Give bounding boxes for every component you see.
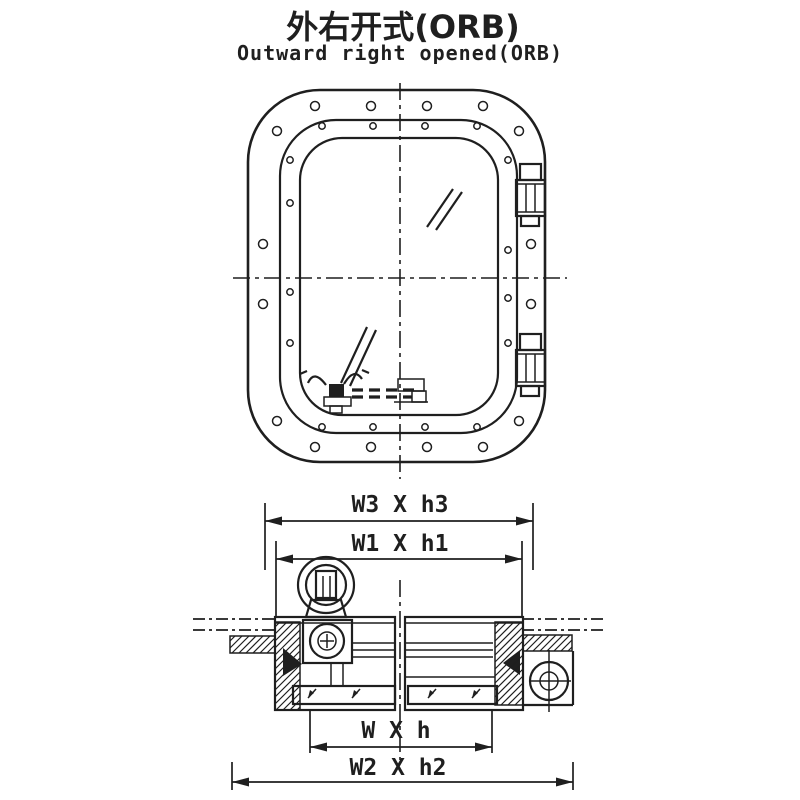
screw-icon — [287, 200, 293, 206]
arrowhead-right — [556, 778, 573, 787]
glass-opening — [300, 138, 498, 415]
bolt-icon — [527, 300, 536, 309]
eyebolt — [298, 557, 354, 617]
bolt-icon — [259, 300, 268, 309]
screw-icon — [505, 157, 511, 163]
hinge-tab — [521, 386, 539, 396]
hatch-line — [275, 622, 287, 634]
technical-drawing: 外右开式(ORB) Outward right opened(ORB) — [0, 0, 800, 800]
screw-icon — [287, 340, 293, 346]
handle-base — [324, 397, 351, 406]
handle-tick-right — [362, 370, 369, 373]
hinges — [516, 164, 545, 396]
clamp-tick — [308, 689, 316, 698]
hatch-line — [232, 636, 249, 653]
hatch-line — [540, 635, 556, 651]
dimension-label-w3h3: W3 X h3 — [352, 492, 449, 518]
hatch-line — [260, 638, 275, 653]
hatch-line — [515, 697, 523, 705]
hinge — [516, 164, 545, 226]
hatched-sections — [230, 622, 572, 710]
bolt-icon — [423, 102, 432, 111]
hatch-line — [547, 635, 563, 651]
hinge-barrel — [516, 180, 545, 216]
hatch-line — [230, 636, 242, 648]
screw-icon — [319, 424, 325, 430]
hatch-line — [275, 679, 300, 704]
screw-icon — [474, 123, 480, 129]
arrowhead-right — [516, 517, 533, 526]
arrowhead-left — [276, 555, 293, 564]
screw-icon — [474, 424, 480, 430]
bolt-icon — [273, 417, 282, 426]
hatch-line — [495, 676, 523, 704]
bolt-icon — [367, 443, 376, 452]
dimension-wh: W X h — [310, 709, 492, 753]
hatch-line — [554, 635, 570, 651]
bolt-icon — [479, 102, 488, 111]
hatch-line — [275, 672, 300, 697]
arrowhead-left — [232, 778, 249, 787]
hinge-barrel — [516, 350, 545, 386]
glass-mark — [436, 192, 462, 230]
section-right-half — [405, 617, 573, 712]
title-english: Outward right opened(ORB) — [237, 41, 563, 65]
locking-handle — [300, 370, 428, 413]
hatch-line — [526, 635, 542, 651]
dimension-label-wh: W X h — [361, 718, 430, 744]
dimensions: W3 X h3W1 X h1W X hW2 X h2 — [232, 492, 573, 790]
hatch-line — [495, 622, 507, 634]
hatch-line — [246, 636, 263, 653]
clamp-tick — [428, 689, 436, 698]
bolt-icon — [423, 443, 432, 452]
glass-reflection-marks — [341, 189, 462, 386]
section-left-half — [275, 617, 395, 710]
arrowhead-left — [265, 517, 282, 526]
handle-wing-left — [308, 376, 326, 385]
bolt-icon — [515, 417, 524, 426]
hatch-line — [253, 636, 270, 653]
hatched-region — [230, 636, 275, 653]
screw-icon — [505, 295, 511, 301]
bolt-icon — [259, 240, 268, 249]
hatch-line — [239, 636, 256, 653]
arrowhead-right — [475, 743, 492, 752]
hinge-cap — [520, 334, 541, 350]
clamp-tick — [472, 689, 480, 698]
bolt-icon — [515, 127, 524, 136]
bolt-icon — [527, 240, 536, 249]
retainer-strip-right — [408, 686, 497, 704]
hatch-line — [495, 669, 523, 697]
cover-bolts — [287, 123, 511, 430]
hatch-line — [523, 635, 535, 647]
latch-foot — [412, 391, 426, 402]
bolt-icon — [367, 102, 376, 111]
screw-icon — [422, 123, 428, 129]
screw-icon — [422, 424, 428, 430]
dimension-label-w2h2: W2 X h2 — [350, 755, 447, 781]
front-view — [233, 83, 567, 479]
bolt-icon — [479, 443, 488, 452]
hatch-line — [495, 627, 523, 655]
arrowhead-left — [310, 743, 327, 752]
handle-hub — [329, 384, 344, 397]
screw-icon — [505, 340, 511, 346]
outer-frame — [248, 90, 545, 462]
hatch-line — [275, 630, 300, 655]
hinge-cap — [520, 164, 541, 180]
retainer-strip-left — [293, 686, 395, 704]
glass-mark — [427, 189, 453, 227]
hatch-line — [283, 693, 300, 710]
bolt-icon — [311, 102, 320, 111]
dimension-w2h2: W2 X h2 — [232, 755, 573, 790]
hatch-line — [533, 635, 549, 651]
dimension-w1h1: W1 X h1 — [276, 531, 522, 616]
screw-icon — [287, 157, 293, 163]
hatched-region — [523, 635, 572, 651]
screw-icon — [287, 289, 293, 295]
hatch-line — [276, 686, 300, 710]
screw-icon — [370, 424, 376, 430]
hatch-line — [275, 623, 300, 648]
eyebolt-shank — [316, 571, 336, 598]
hinge-pin-assembly — [523, 650, 573, 712]
arrowhead-right — [505, 555, 522, 564]
hatch-line — [508, 690, 523, 705]
handle-foot — [330, 406, 342, 413]
glass-mark — [350, 330, 376, 386]
bolt-icon — [311, 443, 320, 452]
hinge-tab — [521, 216, 539, 226]
hatch-line — [495, 622, 521, 648]
hatch-line — [274, 652, 275, 653]
drawing-sheet: 外右开式(ORB) Outward right opened(ORB) — [0, 0, 800, 800]
screw-icon — [370, 123, 376, 129]
hatch-line — [522, 704, 523, 705]
screw-icon — [319, 123, 325, 129]
screw-icon — [505, 247, 511, 253]
title-block: 外右开式(ORB) Outward right opened(ORB) — [237, 8, 563, 65]
dimension-label-w1h1: W1 X h1 — [352, 531, 449, 557]
hinge — [516, 334, 545, 396]
bolt-icon — [273, 127, 282, 136]
hatch-line — [267, 645, 275, 653]
clamp-tick — [352, 689, 360, 698]
